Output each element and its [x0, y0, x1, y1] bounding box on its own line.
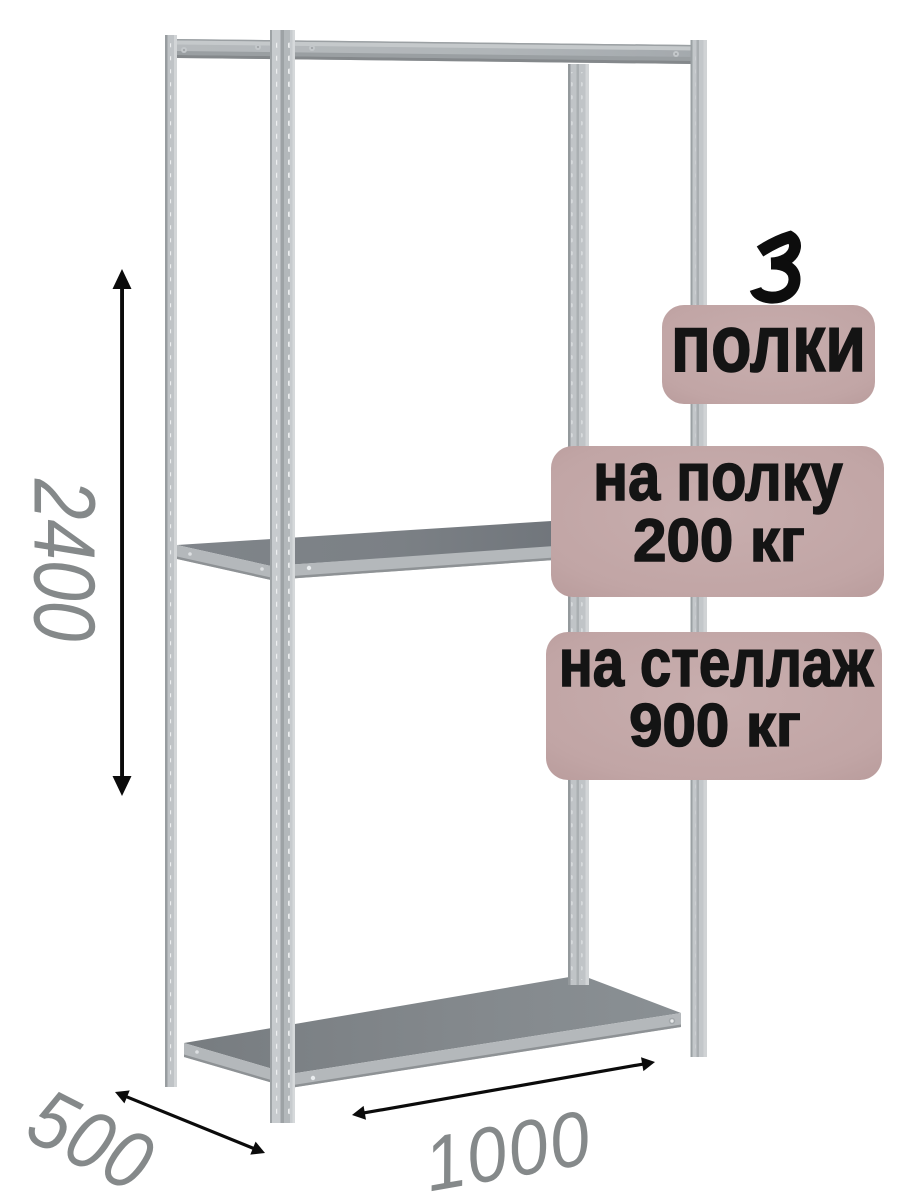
svg-text:200 кг: 200 кг — [633, 507, 805, 574]
svg-text:полки: полки — [671, 298, 866, 389]
svg-text:900 кг: 900 кг — [629, 692, 801, 759]
svg-text:на полку: на полку — [593, 440, 843, 515]
svg-text:на стеллаж: на стеллаж — [559, 625, 874, 701]
svg-text:2400: 2400 — [15, 478, 113, 641]
